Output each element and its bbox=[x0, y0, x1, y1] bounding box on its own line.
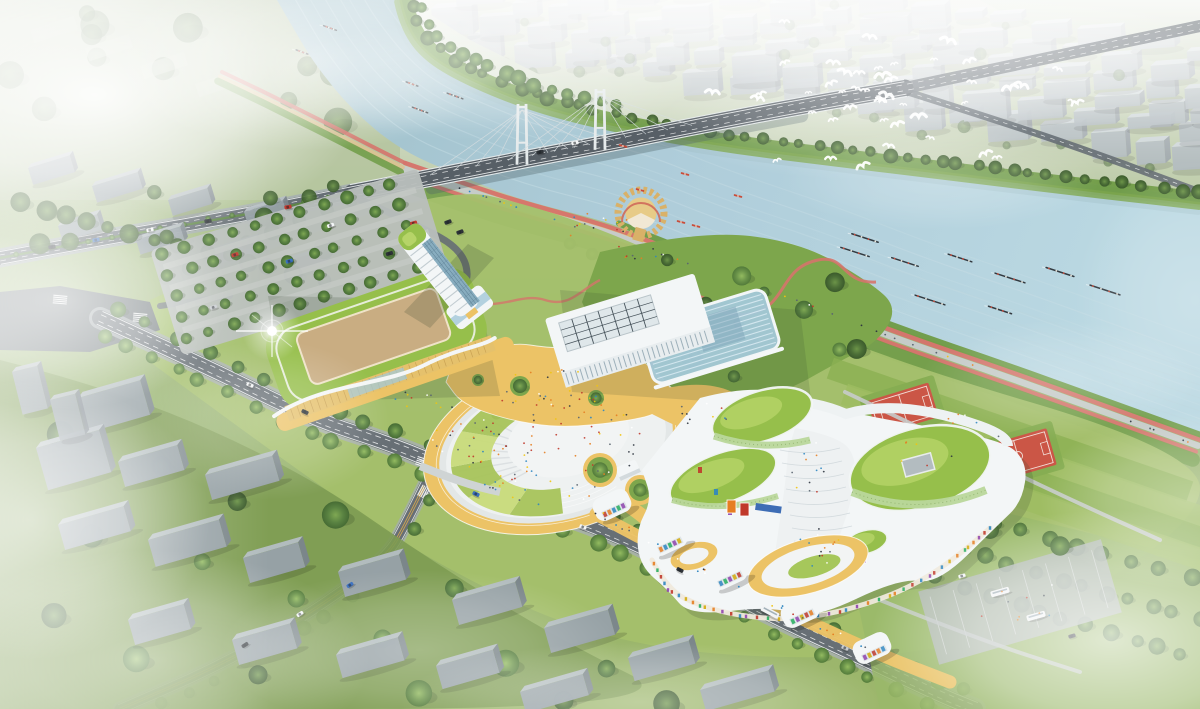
person-dot bbox=[600, 404, 602, 406]
person-dot bbox=[515, 400, 517, 402]
person-dot bbox=[469, 466, 471, 468]
lens-flare-part bbox=[267, 326, 277, 336]
person-dot bbox=[677, 558, 679, 560]
person-dot bbox=[615, 524, 617, 526]
person-dot bbox=[628, 530, 630, 532]
person-dot bbox=[500, 475, 502, 477]
person-dot bbox=[505, 445, 507, 447]
person-dot bbox=[819, 555, 821, 557]
person-dot bbox=[884, 334, 886, 336]
person-dot bbox=[704, 572, 706, 574]
storefront-strip bbox=[845, 608, 847, 612]
person-dot bbox=[544, 452, 546, 454]
tree-icon bbox=[732, 266, 751, 285]
person-dot bbox=[543, 398, 545, 400]
person-dot bbox=[603, 217, 605, 219]
person-dot bbox=[796, 299, 798, 301]
person-dot bbox=[818, 528, 820, 530]
person-dot bbox=[515, 480, 517, 482]
person-dot bbox=[628, 465, 630, 467]
person-dot bbox=[916, 443, 918, 445]
person-dot bbox=[809, 490, 811, 492]
storefront-strip bbox=[828, 612, 830, 616]
render-stage bbox=[0, 0, 1200, 709]
person-dot bbox=[515, 206, 517, 208]
person-dot bbox=[824, 547, 826, 549]
person-dot bbox=[832, 633, 834, 635]
fog-patch bbox=[660, 60, 1060, 180]
person-dot bbox=[483, 419, 485, 421]
person-dot bbox=[805, 459, 807, 461]
person-dot bbox=[817, 534, 819, 536]
person-dot bbox=[586, 213, 588, 215]
person-dot bbox=[589, 397, 591, 399]
person-dot bbox=[926, 465, 928, 467]
person-dot bbox=[583, 411, 585, 413]
person-dot bbox=[411, 397, 413, 399]
person-dot bbox=[595, 513, 597, 515]
person-dot bbox=[592, 464, 594, 466]
person-dot bbox=[557, 371, 559, 373]
tree-icon bbox=[407, 522, 421, 536]
bird-icon bbox=[809, 111, 816, 112]
person-dot bbox=[808, 304, 810, 306]
person-dot bbox=[864, 646, 866, 648]
person-dot bbox=[605, 219, 607, 221]
storefront-strip bbox=[721, 610, 723, 614]
storefront-strip bbox=[878, 598, 880, 602]
person-dot bbox=[622, 230, 624, 232]
person-dot bbox=[632, 255, 634, 257]
person-dot bbox=[482, 195, 484, 197]
person-dot bbox=[811, 565, 813, 567]
person-dot bbox=[555, 434, 557, 436]
person-dot bbox=[588, 495, 590, 497]
person-dot bbox=[697, 570, 699, 572]
person-dot bbox=[584, 223, 586, 225]
person-dot bbox=[952, 422, 954, 424]
person-dot bbox=[626, 255, 628, 257]
person-dot bbox=[657, 543, 659, 545]
person-dot bbox=[815, 442, 817, 444]
tree-icon bbox=[327, 180, 340, 193]
bird-icon bbox=[825, 157, 836, 159]
person-dot bbox=[452, 430, 454, 432]
person-dot bbox=[799, 538, 801, 540]
person-dot bbox=[530, 432, 532, 434]
tree-icon bbox=[661, 254, 673, 266]
person-dot bbox=[449, 434, 451, 436]
person-dot bbox=[526, 466, 528, 468]
person-dot bbox=[820, 551, 822, 553]
tree-icon bbox=[1099, 176, 1109, 186]
storefront-strip bbox=[867, 601, 869, 605]
person-dot bbox=[686, 413, 688, 415]
person-dot bbox=[530, 372, 532, 374]
person-dot bbox=[561, 369, 563, 371]
person-dot bbox=[912, 344, 914, 346]
person-dot bbox=[532, 426, 534, 428]
storefront-strip bbox=[739, 614, 741, 618]
person-dot bbox=[816, 469, 818, 471]
person-dot bbox=[499, 485, 501, 487]
person-dot bbox=[480, 461, 482, 463]
person-dot bbox=[493, 433, 495, 435]
person-dot bbox=[506, 391, 508, 393]
tree-icon bbox=[592, 462, 608, 478]
person-dot bbox=[530, 444, 532, 446]
person-dot bbox=[539, 395, 541, 397]
bird-icon bbox=[854, 71, 865, 73]
person-dot bbox=[860, 645, 862, 647]
person-dot bbox=[519, 499, 521, 501]
person-dot bbox=[596, 385, 598, 387]
person-dot bbox=[592, 399, 594, 401]
person-dot bbox=[623, 414, 625, 416]
person-dot bbox=[405, 392, 407, 394]
person-dot bbox=[395, 398, 397, 400]
person-dot bbox=[512, 402, 514, 404]
person-dot bbox=[576, 225, 578, 227]
person-dot bbox=[550, 480, 552, 482]
person-dot bbox=[820, 467, 822, 469]
person-dot bbox=[547, 376, 549, 378]
person-dot bbox=[502, 482, 504, 484]
person-dot bbox=[494, 481, 496, 483]
tree-icon bbox=[633, 483, 646, 496]
person-dot bbox=[492, 422, 494, 424]
person-dot bbox=[426, 394, 428, 396]
person-dot bbox=[552, 405, 554, 407]
person-dot bbox=[451, 406, 453, 408]
person-dot bbox=[703, 568, 705, 570]
person-dot bbox=[905, 442, 907, 444]
person-dot bbox=[523, 454, 525, 456]
person-dot bbox=[894, 337, 896, 339]
person-dot bbox=[472, 456, 474, 458]
person-dot bbox=[579, 223, 581, 225]
person-dot bbox=[687, 422, 689, 424]
person-dot bbox=[951, 455, 953, 457]
person-dot bbox=[436, 429, 438, 431]
person-dot bbox=[576, 484, 578, 486]
person-dot bbox=[595, 396, 597, 398]
person-dot bbox=[538, 399, 540, 401]
person-dot bbox=[948, 418, 950, 420]
person-dot bbox=[594, 486, 596, 488]
person-dot bbox=[626, 219, 628, 221]
person-dot bbox=[406, 405, 408, 407]
person-dot bbox=[808, 542, 810, 544]
storefront-strip bbox=[730, 612, 732, 616]
person-dot bbox=[435, 402, 437, 404]
person-dot bbox=[816, 491, 818, 493]
storefront-strip bbox=[839, 610, 841, 614]
person-dot bbox=[563, 370, 565, 372]
person-dot bbox=[590, 417, 592, 419]
person-dot bbox=[628, 526, 630, 528]
person-dot bbox=[486, 426, 488, 428]
tree-icon bbox=[792, 638, 803, 649]
person-dot bbox=[608, 471, 610, 473]
person-dot bbox=[527, 452, 529, 454]
storefront-strip bbox=[678, 594, 680, 598]
person-dot bbox=[482, 451, 484, 453]
person-dot bbox=[574, 226, 576, 228]
person-dot bbox=[538, 393, 540, 395]
person-dot bbox=[532, 414, 534, 416]
person-dot bbox=[577, 371, 579, 373]
person-dot bbox=[620, 434, 622, 436]
person-dot bbox=[538, 503, 540, 505]
person-dot bbox=[440, 406, 442, 408]
person-dot bbox=[796, 487, 798, 489]
person-dot bbox=[823, 471, 825, 473]
person-dot bbox=[472, 462, 474, 464]
fog-patch bbox=[920, 320, 1200, 440]
person-dot bbox=[712, 416, 714, 418]
person-dot bbox=[585, 470, 587, 472]
person-dot bbox=[460, 423, 462, 425]
person-dot bbox=[485, 196, 487, 198]
tree-icon bbox=[322, 501, 349, 528]
person-dot bbox=[558, 448, 560, 450]
person-dot bbox=[861, 324, 863, 326]
person-dot bbox=[826, 562, 828, 564]
fog-patch bbox=[150, 340, 390, 500]
person-dot bbox=[545, 395, 547, 397]
person-dot bbox=[618, 246, 620, 248]
person-dot bbox=[781, 607, 783, 609]
tree-icon bbox=[768, 628, 780, 640]
person-dot bbox=[677, 258, 679, 260]
person-dot bbox=[782, 605, 784, 607]
person-dot bbox=[493, 449, 495, 451]
person-dot bbox=[432, 439, 434, 441]
billboard-poster bbox=[740, 503, 749, 516]
storefront-strip bbox=[660, 575, 662, 579]
person-dot bbox=[474, 422, 476, 424]
person-dot bbox=[616, 229, 618, 231]
person-dot bbox=[604, 518, 606, 520]
person-dot bbox=[598, 431, 600, 433]
person-dot bbox=[407, 394, 409, 396]
person-dot bbox=[569, 390, 571, 392]
curved-mall-part bbox=[714, 489, 718, 495]
person-dot bbox=[489, 487, 491, 489]
tree-icon bbox=[590, 392, 601, 403]
person-dot bbox=[495, 489, 497, 491]
person-dot bbox=[512, 496, 514, 498]
person-dot bbox=[502, 448, 504, 450]
person-dot bbox=[457, 449, 459, 451]
storefront-strip bbox=[656, 568, 658, 572]
person-dot bbox=[436, 445, 438, 447]
person-dot bbox=[584, 437, 586, 439]
person-dot bbox=[834, 541, 836, 543]
person-dot bbox=[593, 227, 595, 229]
person-dot bbox=[632, 453, 634, 455]
person-dot bbox=[573, 216, 575, 218]
person-dot bbox=[536, 404, 538, 406]
person-dot bbox=[599, 433, 601, 435]
person-dot bbox=[570, 395, 572, 397]
person-dot bbox=[603, 409, 605, 411]
person-dot bbox=[581, 392, 583, 394]
storefront-strip bbox=[699, 604, 701, 608]
person-dot bbox=[706, 403, 708, 405]
person-dot bbox=[687, 263, 689, 265]
person-dot bbox=[523, 442, 525, 444]
storefront-strip bbox=[745, 615, 747, 619]
person-dot bbox=[449, 433, 451, 435]
person-dot bbox=[570, 235, 572, 237]
bird-icon bbox=[779, 20, 789, 22]
person-dot bbox=[578, 417, 580, 419]
person-dot bbox=[579, 398, 581, 400]
storefront-strip bbox=[685, 597, 687, 601]
person-dot bbox=[616, 222, 618, 224]
person-dot bbox=[689, 418, 691, 420]
person-dot bbox=[531, 435, 533, 437]
person-dot bbox=[628, 451, 630, 453]
person-dot bbox=[501, 400, 503, 402]
person-dot bbox=[648, 542, 650, 544]
person-dot bbox=[572, 487, 574, 489]
person-dot bbox=[611, 419, 613, 421]
person-dot bbox=[821, 555, 823, 557]
person-dot bbox=[498, 454, 500, 456]
person-dot bbox=[442, 451, 444, 453]
person-dot bbox=[652, 248, 654, 250]
person-dot bbox=[725, 418, 727, 420]
person-dot bbox=[792, 613, 794, 615]
person-dot bbox=[560, 423, 562, 425]
person-dot bbox=[550, 372, 552, 374]
person-dot bbox=[583, 498, 585, 500]
person-dot bbox=[721, 407, 723, 409]
person-dot bbox=[515, 374, 517, 376]
storefront-strip bbox=[667, 588, 669, 592]
tree-icon bbox=[388, 423, 403, 438]
person-dot bbox=[594, 401, 596, 403]
person-dot bbox=[514, 478, 516, 480]
person-dot bbox=[831, 313, 833, 315]
person-dot bbox=[591, 426, 593, 428]
person-dot bbox=[771, 605, 773, 607]
person-dot bbox=[430, 394, 432, 396]
tree-icon bbox=[825, 272, 845, 292]
person-dot bbox=[791, 472, 793, 474]
person-dot bbox=[531, 470, 533, 472]
person-dot bbox=[575, 455, 577, 457]
person-dot bbox=[633, 444, 635, 446]
person-dot bbox=[840, 632, 842, 634]
person-dot bbox=[554, 218, 556, 220]
billboard-poster bbox=[727, 500, 736, 513]
person-dot bbox=[609, 443, 611, 445]
person-dot bbox=[525, 460, 527, 462]
person-dot bbox=[484, 484, 486, 486]
tree-icon bbox=[590, 534, 607, 551]
person-dot bbox=[803, 453, 805, 455]
person-dot bbox=[510, 204, 512, 206]
person-dot bbox=[555, 418, 557, 420]
person-dot bbox=[603, 473, 605, 475]
person-dot bbox=[550, 399, 552, 401]
person-dot bbox=[468, 455, 470, 457]
person-dot bbox=[634, 258, 636, 260]
person-dot bbox=[490, 431, 492, 433]
tree-icon bbox=[387, 453, 402, 468]
person-dot bbox=[563, 407, 565, 409]
tree-icon bbox=[814, 648, 829, 663]
person-dot bbox=[621, 528, 623, 530]
person-dot bbox=[469, 445, 471, 447]
storefront-strip bbox=[704, 605, 706, 609]
person-dot bbox=[616, 414, 618, 416]
person-dot bbox=[832, 543, 834, 545]
tree-icon bbox=[847, 339, 867, 359]
person-dot bbox=[829, 551, 831, 553]
person-dot bbox=[639, 433, 641, 435]
storefront-strip bbox=[671, 590, 673, 594]
person-dot bbox=[784, 295, 786, 297]
person-dot bbox=[802, 617, 804, 619]
storefront-strip bbox=[856, 605, 858, 609]
person-dot bbox=[655, 256, 657, 258]
person-dot bbox=[514, 474, 516, 476]
storefront-strip bbox=[712, 608, 714, 612]
person-dot bbox=[819, 628, 821, 630]
person-dot bbox=[998, 435, 1000, 437]
person-dot bbox=[568, 495, 570, 497]
person-dot bbox=[498, 433, 500, 435]
storefront-strip bbox=[756, 616, 758, 620]
storefront-strip bbox=[663, 582, 665, 586]
person-dot bbox=[589, 443, 591, 445]
person-dot bbox=[809, 482, 811, 484]
person-dot bbox=[482, 430, 484, 432]
person-dot bbox=[812, 305, 814, 307]
person-dot bbox=[526, 470, 528, 472]
person-dot bbox=[738, 586, 740, 588]
person-dot bbox=[681, 413, 683, 415]
person-dot bbox=[511, 479, 513, 481]
tree-icon bbox=[611, 544, 628, 561]
person-dot bbox=[661, 254, 663, 256]
storefront-strip bbox=[653, 562, 655, 566]
person-dot bbox=[503, 202, 505, 204]
person-dot bbox=[473, 436, 475, 438]
person-dot bbox=[901, 460, 903, 462]
storefront-strip bbox=[692, 601, 694, 605]
aerial-architectural-rendering bbox=[0, 0, 1200, 709]
person-dot bbox=[826, 629, 828, 631]
person-dot bbox=[550, 404, 552, 406]
person-dot bbox=[838, 539, 840, 541]
person-dot bbox=[499, 201, 501, 203]
person-dot bbox=[459, 187, 461, 189]
person-dot bbox=[631, 427, 633, 429]
person-dot bbox=[626, 414, 628, 416]
person-dot bbox=[469, 191, 471, 193]
person-dot bbox=[602, 512, 604, 514]
person-dot bbox=[569, 405, 571, 407]
person-dot bbox=[530, 449, 532, 451]
tree-icon bbox=[832, 343, 846, 357]
person-dot bbox=[641, 257, 643, 259]
